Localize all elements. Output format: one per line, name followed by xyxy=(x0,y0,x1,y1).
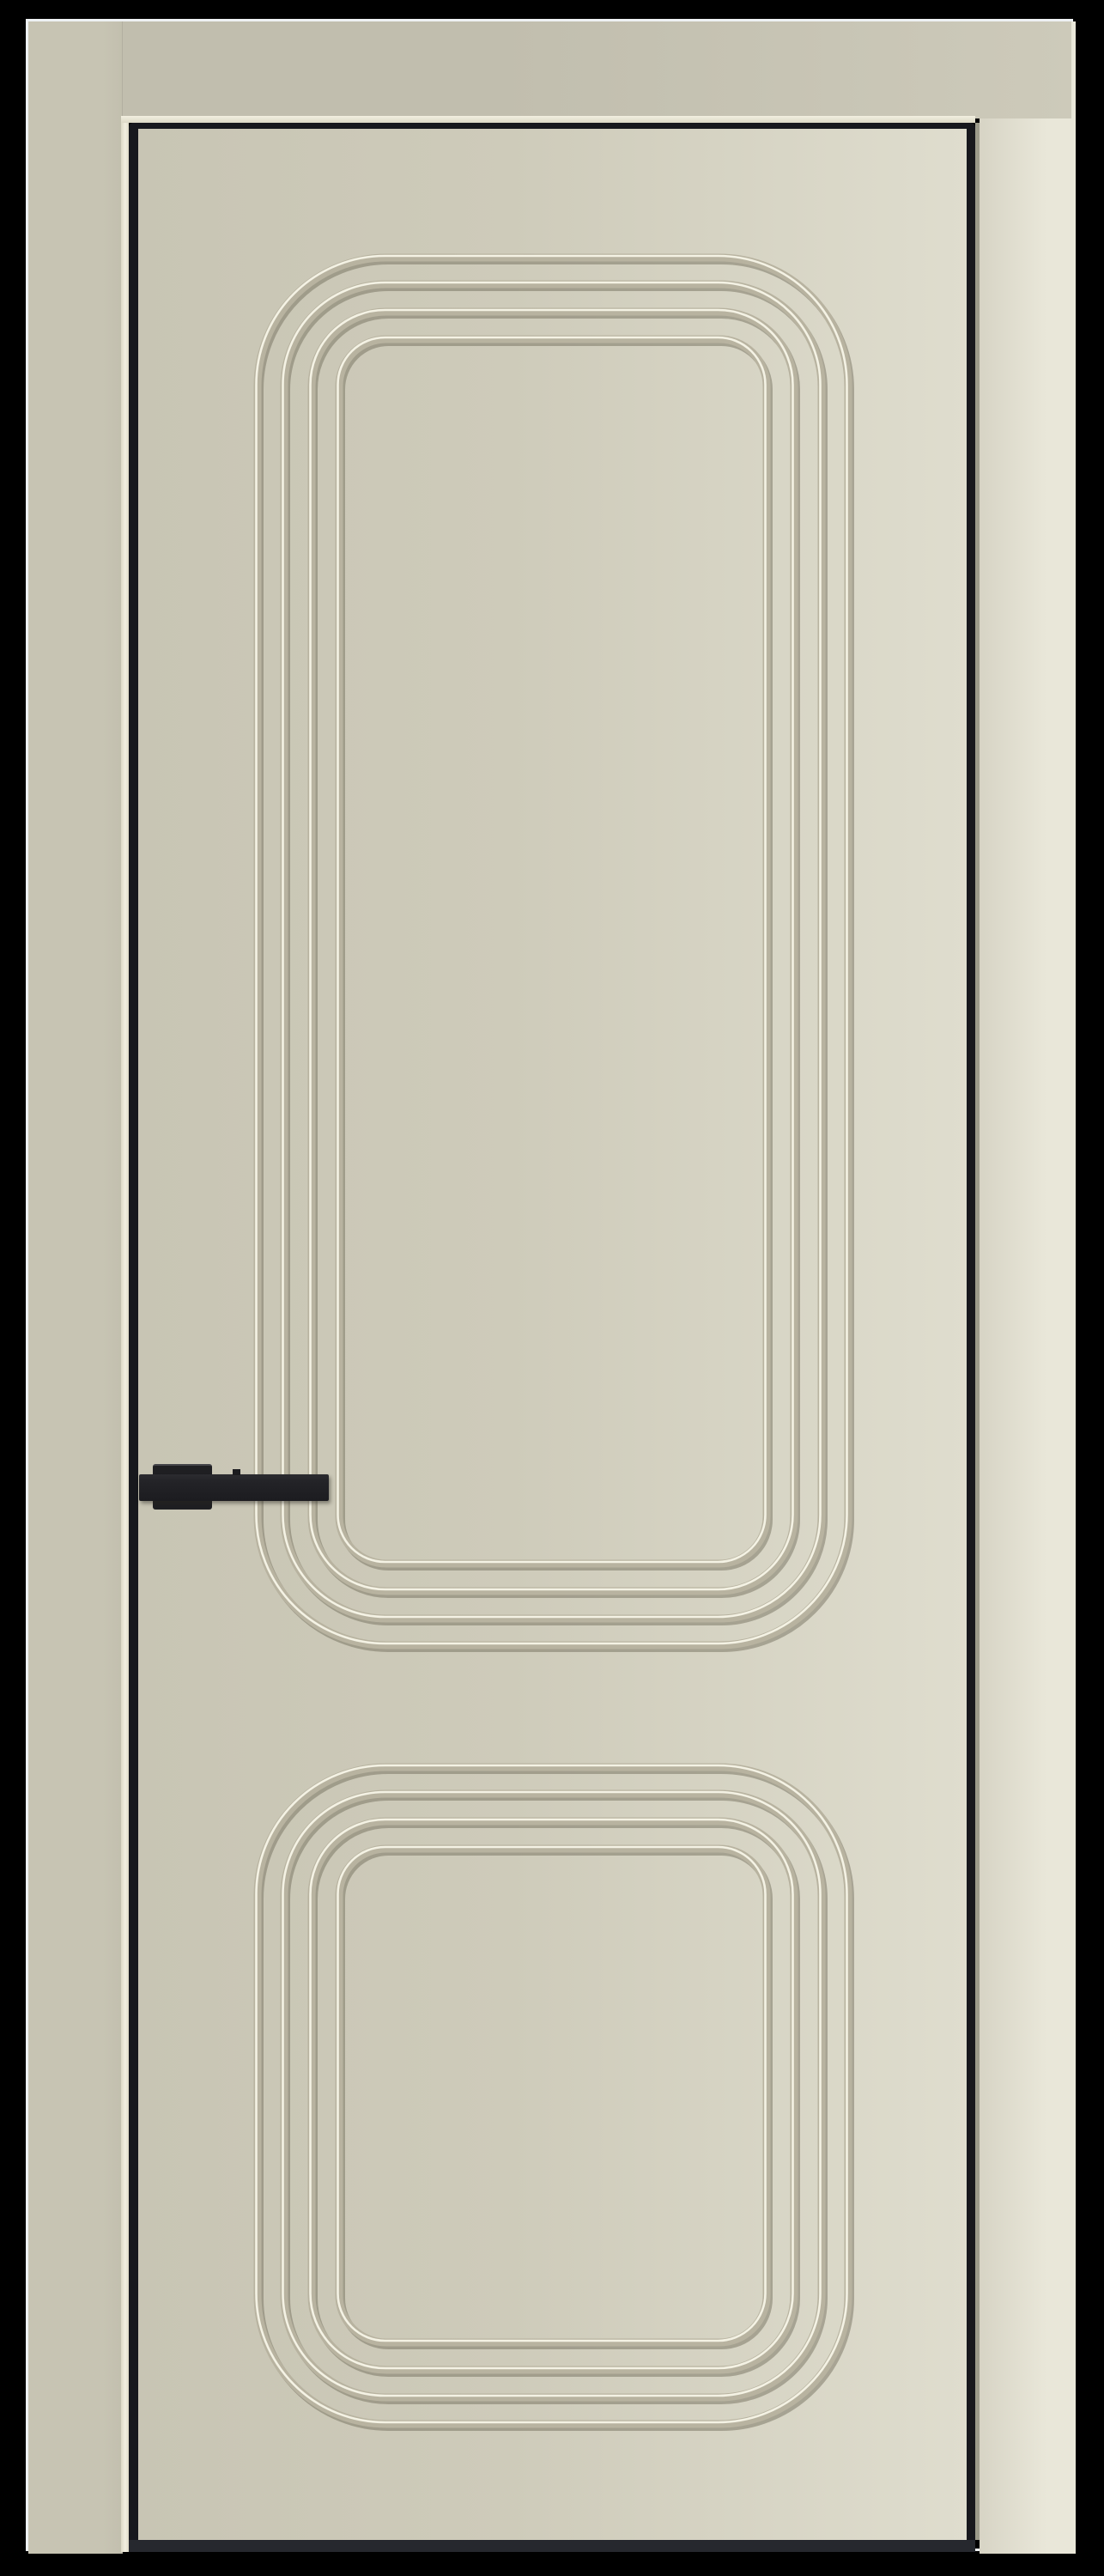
upper-panel-grooves xyxy=(257,256,851,1649)
door-panel-grooves xyxy=(138,129,967,2540)
panel-ring xyxy=(338,337,766,1562)
panel-ring xyxy=(287,1797,824,2401)
panel-ring xyxy=(287,288,824,1622)
lower-panel-grooves xyxy=(257,1765,851,2427)
panel-ring xyxy=(311,310,793,1589)
door-frame-right-casing-edge xyxy=(1071,21,1076,118)
panel-ring xyxy=(283,283,821,1617)
panel-ring xyxy=(284,1794,822,2397)
panel-ring xyxy=(314,1825,797,2373)
panel-ring xyxy=(284,284,822,1619)
door-bottom-gap-shadow xyxy=(129,2540,975,2552)
panel-ring xyxy=(339,1849,767,2342)
door-handle-spindle-nub xyxy=(233,1469,240,1475)
panel-ring xyxy=(342,1852,769,2346)
panel-ring xyxy=(312,312,794,1591)
panel-ring xyxy=(311,1820,793,2368)
frame-reveal-left xyxy=(121,116,129,2552)
panel-ring xyxy=(312,1821,794,2370)
door-leaf xyxy=(138,129,967,2540)
door-frame-left-casing xyxy=(28,21,123,2554)
panel-ring xyxy=(283,1792,821,2396)
panel-ring xyxy=(338,1847,766,2341)
panel-ring xyxy=(314,315,797,1595)
panel-ring xyxy=(342,343,769,1567)
panel-ring xyxy=(258,258,848,1645)
door-handle-lever xyxy=(139,1474,329,1501)
frame-reveal-top xyxy=(121,116,975,123)
door-product-image xyxy=(0,0,1104,2576)
panel-ring xyxy=(339,339,767,1564)
door-frame-right-jamb xyxy=(980,118,1076,2554)
door-right-rebate-line xyxy=(975,123,980,2540)
panel-ring xyxy=(260,261,851,1649)
door-frame-head-casing xyxy=(28,21,1076,118)
